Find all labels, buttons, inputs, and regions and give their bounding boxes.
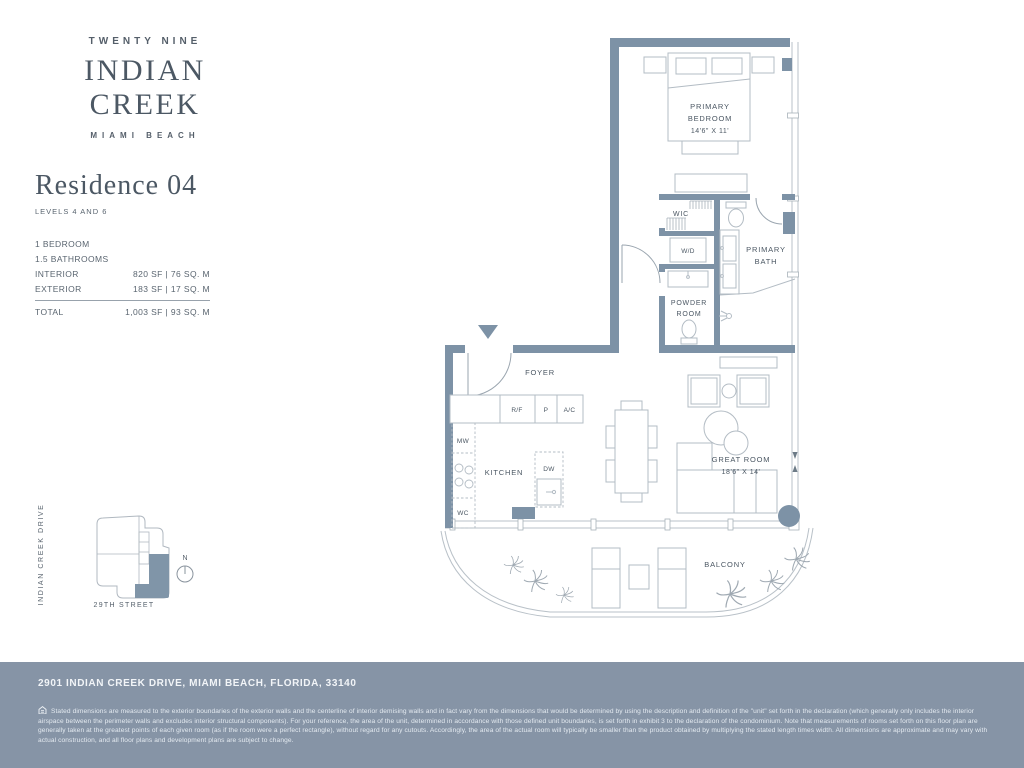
spec-divider	[35, 300, 210, 301]
spec-bedrooms: 1 BEDROOM	[35, 237, 210, 252]
sink	[723, 236, 736, 261]
label-wc: WC	[457, 510, 468, 517]
label-primary-bedroom-2: BEDROOM	[688, 114, 732, 123]
balcony-table	[629, 565, 649, 589]
brand-logo: TWENTY NINE INDIAN CREEK MIAMI BEACH	[33, 36, 257, 140]
nightstand	[752, 57, 774, 73]
great-room-furniture	[677, 357, 777, 513]
spec-bedrooms-label: 1 BEDROOM	[35, 237, 90, 252]
lounge-chair	[592, 548, 620, 608]
sliding-door-arrows	[793, 452, 798, 472]
sink	[723, 264, 736, 288]
residence-info: Residence 04 LEVELS 4 AND 6 1 BEDROOM 1.…	[35, 170, 210, 320]
footer-disclaimer-text: Stated dimensions are measured to the ex…	[38, 708, 987, 744]
label-wic: WIC	[673, 211, 689, 218]
spec-interior-label: INTERIOR	[35, 267, 79, 282]
levels-subtitle: LEVELS 4 AND 6	[35, 207, 210, 216]
label-pantry: P	[544, 407, 549, 414]
brand-line-sub: MIAMI BEACH	[33, 131, 257, 140]
spec-bathrooms-label: 1.5 BATHROOMS	[35, 252, 109, 267]
hallway-door	[622, 245, 660, 283]
equal-housing-icon	[38, 706, 47, 714]
label-primary-bedroom-dims: 14'6" X 11'	[691, 128, 729, 135]
lounge-chair	[658, 548, 686, 608]
toilet-tank	[726, 202, 746, 208]
dining-table	[615, 410, 648, 493]
label-primary-bath-2: BATH	[755, 257, 778, 266]
brand-line-main: INDIAN CREEK	[33, 54, 257, 122]
armchair	[737, 375, 769, 407]
shower-head	[727, 314, 732, 319]
spec-bathrooms: 1.5 BATHROOMS	[35, 252, 210, 267]
label-mw: MW	[457, 438, 470, 445]
spec-table: 1 BEDROOM 1.5 BATHROOMS INTERIOR 820 SF …	[35, 237, 210, 320]
spec-interior: INTERIOR 820 SF | 76 SQ. M	[35, 267, 210, 282]
floor-plan: PRIMARY BEDROOM 14'6" X 11' WIC W/D POWD…	[438, 28, 818, 628]
entry-arrow-icon	[478, 325, 498, 339]
label-powder-2: ROOM	[677, 311, 702, 318]
label-great-room-dims: 18'6" X 14'	[722, 469, 761, 476]
label-primary-bath-1: PRIMARY	[746, 245, 786, 254]
label-rf: R/F	[511, 407, 522, 414]
bed-bench	[682, 141, 738, 154]
compass-n-label: N	[182, 555, 187, 562]
spec-total-value: 1,003 SF | 93 SQ. M	[125, 305, 210, 320]
bath-door	[756, 198, 782, 224]
console	[720, 357, 777, 368]
balcony-edge	[441, 528, 813, 617]
pillow	[712, 58, 742, 74]
sofa	[677, 443, 777, 513]
street-label-horizontal: 29TH STREET	[84, 602, 164, 609]
label-ac: A/C	[564, 407, 576, 414]
footer-address: 2901 INDIAN CREEK DRIVE, MIAMI BEACH, FL…	[38, 678, 356, 689]
label-foyer: FOYER	[525, 368, 555, 377]
label-powder-1: POWDER	[671, 300, 707, 307]
spec-total: TOTAL 1,003 SF | 93 SQ. M	[35, 305, 210, 320]
dresser	[675, 174, 747, 192]
footer: 2901 INDIAN CREEK DRIVE, MIAMI BEACH, FL…	[0, 662, 1024, 768]
label-primary-bedroom-1: PRIMARY	[690, 102, 730, 111]
label-dw: DW	[543, 466, 555, 473]
page-title: Residence 04	[35, 170, 210, 202]
spec-exterior-value: 183 SF | 17 SQ. M	[133, 282, 210, 297]
round-column	[778, 505, 800, 527]
compass-icon: N	[177, 555, 193, 582]
street-label-vertical: INDIAN CREEK DRIVE	[38, 487, 45, 622]
spec-total-label: TOTAL	[35, 305, 64, 320]
entry-door	[468, 353, 511, 396]
dining-set	[606, 401, 657, 502]
label-kitchen: KITCHEN	[485, 468, 524, 477]
label-balcony: BALCONY	[704, 560, 745, 569]
side-table	[722, 384, 736, 398]
footer-disclaimer: Stated dimensions are measured to the ex…	[38, 706, 990, 745]
cooktop	[455, 464, 473, 488]
balcony-furniture	[592, 548, 686, 608]
spec-exterior: EXTERIOR 183 SF | 17 SQ. M	[35, 282, 210, 297]
label-wd: W/D	[681, 248, 695, 255]
powder-toilet	[681, 320, 697, 344]
spec-exterior-label: EXTERIOR	[35, 282, 82, 297]
armchair	[688, 375, 720, 407]
key-plan: N	[83, 508, 198, 603]
coffee-table	[724, 431, 748, 455]
pillow	[676, 58, 706, 74]
powder-vanity	[668, 271, 708, 287]
key-plan-unit-highlight	[135, 554, 169, 598]
nightstand	[644, 57, 666, 73]
brand-line-top: TWENTY NINE	[33, 36, 257, 47]
spec-interior-value: 820 SF | 76 SQ. M	[133, 267, 210, 282]
label-great-room: GREAT ROOM	[712, 455, 771, 464]
kitchen-island	[535, 452, 563, 507]
bath-toilet	[729, 209, 744, 227]
